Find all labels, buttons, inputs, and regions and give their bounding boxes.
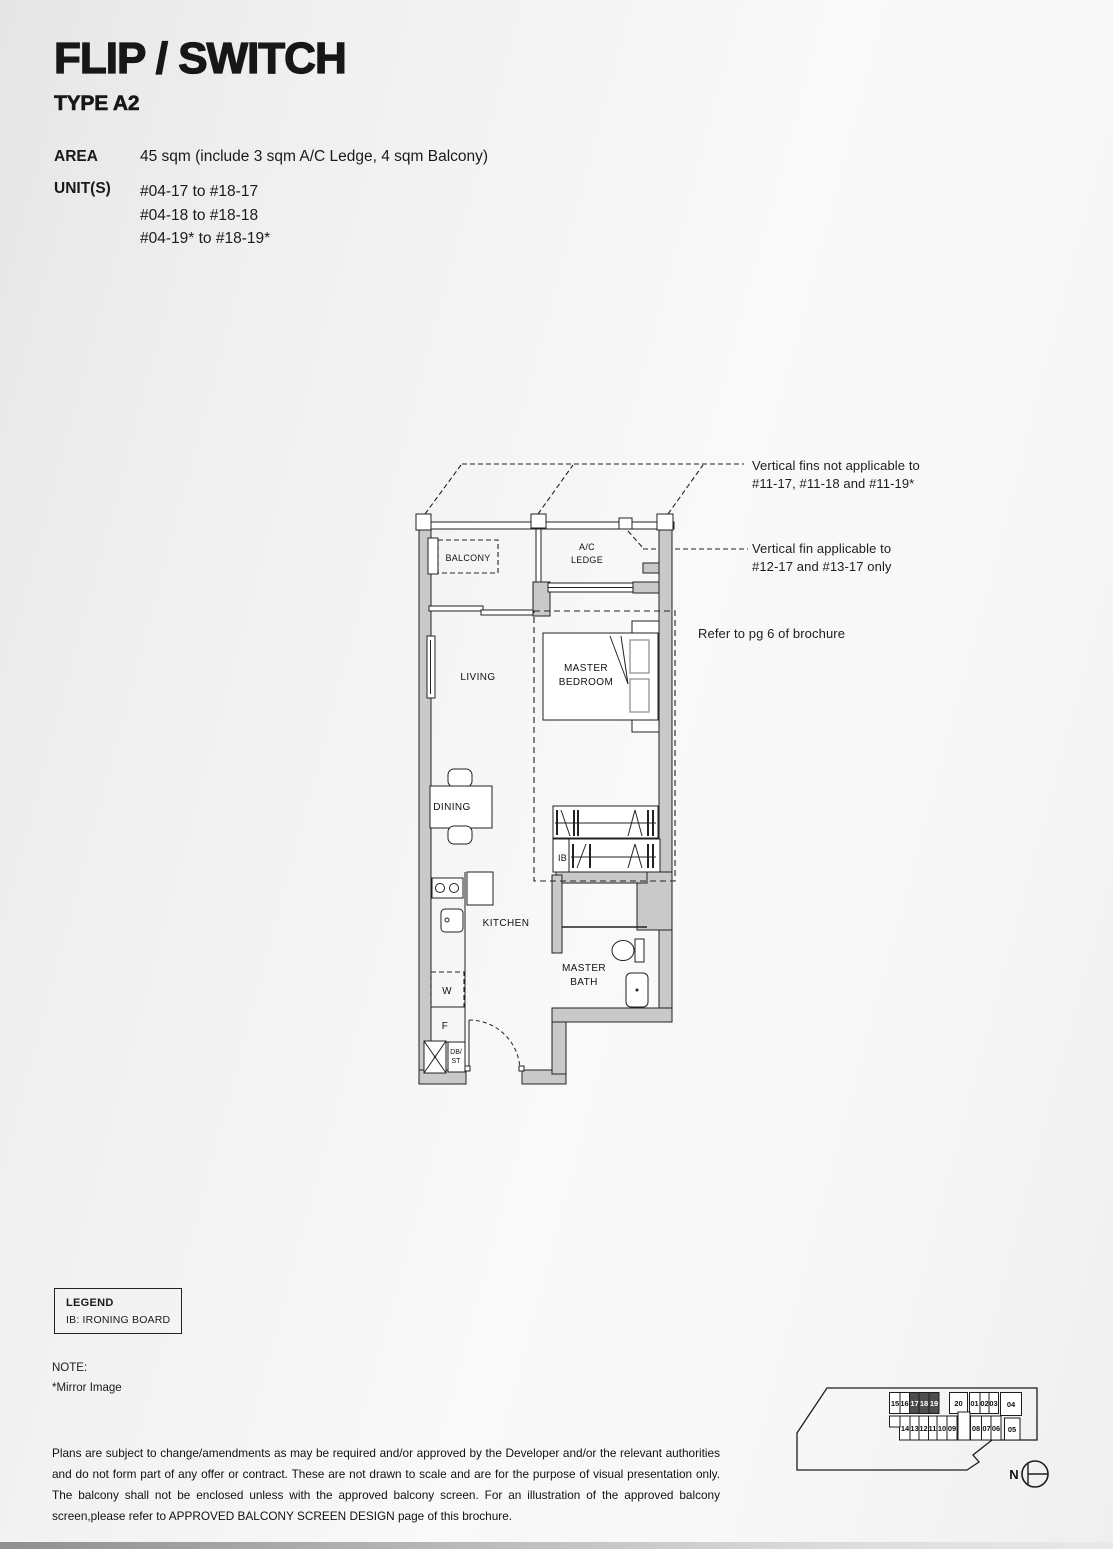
washer-label: W xyxy=(442,986,452,997)
kitchen-label: KITCHEN xyxy=(483,918,530,929)
svg-text:11: 11 xyxy=(929,1424,937,1433)
unit-range: #04-19* to #18-19* xyxy=(140,227,270,251)
fins-annotation: #11-17, #11-18 and #11-19* xyxy=(752,476,914,491)
svg-text:19: 19 xyxy=(930,1399,938,1408)
master-bath-label: MASTER xyxy=(562,963,606,974)
svg-text:09: 09 xyxy=(948,1424,956,1433)
legend-item: IB: IRONING BOARD xyxy=(66,1314,181,1326)
units-row: UNIT(S) #04-17 to #18-17 #04-18 to #18-1… xyxy=(54,180,270,251)
living-label: LIVING xyxy=(460,672,495,683)
note-mirror-image: *Mirror Image xyxy=(52,1382,122,1394)
unit-type: TYPE A2 xyxy=(54,92,139,116)
svg-text:13: 13 xyxy=(910,1424,918,1433)
ac-ledge-label: LEDGE xyxy=(571,555,603,565)
master-bedroom-label: MASTER xyxy=(564,663,608,674)
db-st-cabinet xyxy=(448,1042,465,1072)
area-value: 45 sqm (include 3 sqm A/C Ledge, 4 sqm B… xyxy=(140,148,488,166)
ac-ledge-label: A/C xyxy=(579,542,595,552)
shaft-box xyxy=(424,1041,446,1073)
units-label: UNIT(S) xyxy=(54,180,140,251)
fridge-label: F xyxy=(442,1021,449,1032)
balcony-planter xyxy=(428,538,438,574)
svg-text:17: 17 xyxy=(910,1399,918,1408)
refer-annotation: Refer to pg 6 of brochure xyxy=(698,626,845,641)
living-window xyxy=(427,636,435,698)
svg-text:18: 18 xyxy=(920,1399,928,1408)
fin-annotation: Vertical fin applicable to xyxy=(752,541,891,556)
balcony-sliding-door xyxy=(429,606,533,615)
basin-icon xyxy=(626,973,648,1007)
svg-text:02: 02 xyxy=(980,1399,988,1408)
ac-ledge-window xyxy=(548,583,633,592)
legend-title: LEGEND xyxy=(66,1297,181,1309)
svg-text:08: 08 xyxy=(972,1424,980,1433)
svg-text:04: 04 xyxy=(1007,1400,1016,1409)
floor-plan: BALCONY A/C LEDGE LIVING MASTER BEDROOM … xyxy=(400,440,920,1100)
svg-text:20: 20 xyxy=(954,1399,962,1408)
entrance-door xyxy=(465,1020,524,1071)
svg-text:06: 06 xyxy=(992,1424,1000,1433)
fin-annotation: #12-17 and #13-17 only xyxy=(752,559,892,574)
note-title: NOTE: xyxy=(52,1362,87,1374)
master-bath-label: BATH xyxy=(570,977,598,988)
disclaimer-text: Plans are subject to change/amendments a… xyxy=(52,1443,720,1527)
unit-range: #04-18 to #18-18 xyxy=(140,204,270,228)
dining-label: DINING xyxy=(433,802,470,813)
svg-text:05: 05 xyxy=(1008,1425,1016,1434)
page-edge-shadow xyxy=(0,1542,1113,1549)
area-label: AREA xyxy=(54,148,140,166)
vertical-fin-leader-line xyxy=(628,531,748,549)
master-bedroom-label: BEDROOM xyxy=(559,677,613,688)
svg-text:16: 16 xyxy=(900,1399,908,1408)
wardrobe xyxy=(553,806,660,872)
svg-text:07: 07 xyxy=(982,1424,990,1433)
svg-text:03: 03 xyxy=(989,1399,997,1408)
legend-box: LEGEND IB: IRONING BOARD xyxy=(54,1288,182,1334)
svg-text:01: 01 xyxy=(970,1399,978,1408)
area-row: AREA 45 sqm (include 3 sqm A/C Ledge, 4 … xyxy=(54,148,488,166)
north-indicator-icon xyxy=(1022,1461,1048,1487)
sink xyxy=(441,909,463,932)
key-plan: 15 16 17 18 19 20 01 02 03 04 14 13 12 1… xyxy=(780,1368,1100,1533)
svg-text:15: 15 xyxy=(891,1399,899,1408)
db-label: DB/ xyxy=(450,1049,462,1056)
brochure-page: FLIP / SWITCH TYPE A2 AREA 45 sqm (inclu… xyxy=(0,0,1113,1549)
svg-text:12: 12 xyxy=(919,1424,927,1433)
db-label: ST xyxy=(452,1058,462,1065)
north-label: N xyxy=(1009,1467,1018,1482)
units-list: #04-17 to #18-17 #04-18 to #18-18 #04-19… xyxy=(140,180,270,251)
svg-text:14: 14 xyxy=(901,1424,910,1433)
balcony-ledge-divider-wall xyxy=(536,529,541,582)
svg-text:10: 10 xyxy=(938,1424,946,1433)
balcony-label: BALCONY xyxy=(445,553,490,563)
kitchen-counter xyxy=(424,872,493,1073)
page-title: FLIP / SWITCH xyxy=(54,34,346,84)
fins-annotation: Vertical fins not applicable to xyxy=(752,458,920,473)
toilet-icon xyxy=(612,939,644,962)
vertical-fins-leader-line xyxy=(425,464,744,514)
ironing-board-label: IB xyxy=(558,853,567,863)
unit-range: #04-17 to #18-17 xyxy=(140,180,270,204)
